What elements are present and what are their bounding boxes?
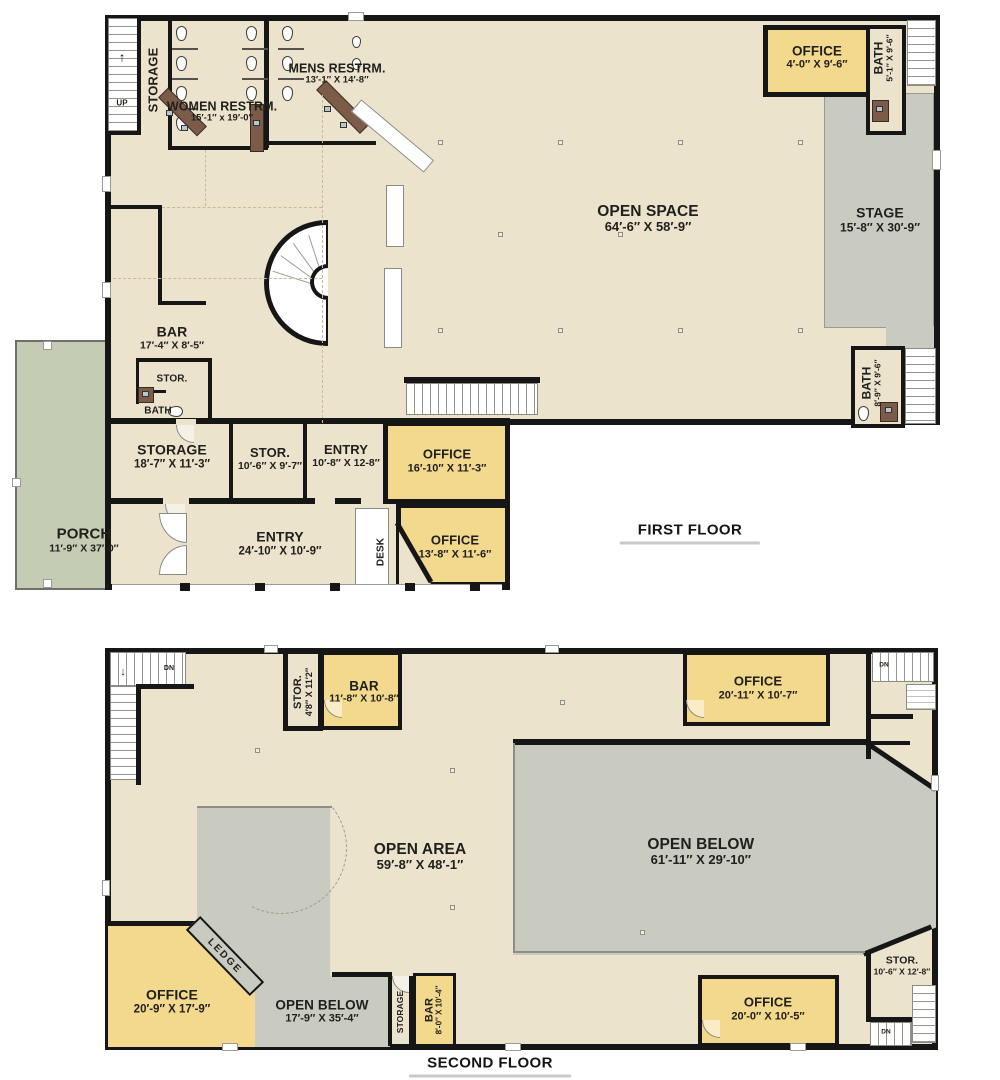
storage-bottom-label: STORAGE (396, 991, 406, 1034)
porch-label: PORCH11′-9″ X 37′-0″ (49, 527, 118, 556)
women-restroom-label: WOMEN RESTRM.15′-1″ x 19′-0″ (167, 100, 277, 125)
window (264, 645, 278, 653)
open-below-right-label: OPEN BELOW61′-11″ X 29′-10″ (647, 836, 754, 868)
first-floor-title: FIRST FLOOR (620, 522, 760, 545)
office-16-label: OFFICE16′-10″ X 11′-3″ (408, 448, 487, 475)
window (505, 1043, 521, 1051)
down-arrow-icon: ↓ (120, 666, 126, 678)
stairs-up-label: UP (116, 100, 127, 109)
stor-by-bar-label: STOR. (157, 373, 188, 384)
window (102, 880, 110, 896)
window (545, 645, 559, 653)
open-area-label: OPEN AREA59′-8″ X 48′-1″ (374, 841, 466, 873)
bath-by-bar-label: BATH (144, 405, 171, 416)
wall (108, 921, 198, 926)
stor-top-label: STOR.4′8″ X 11′2″ (292, 668, 314, 716)
wall (388, 976, 392, 1046)
staircase (906, 684, 936, 710)
stor-center-label: STOR.10′-6″ X 9′-7″ (238, 446, 302, 472)
wall (283, 651, 288, 731)
storage-top-label: STORAGE (147, 48, 162, 113)
staircase-down (110, 686, 138, 780)
wall (332, 972, 392, 977)
entry-main-label: ENTRY24′-10″ X 10′-9″ (238, 530, 321, 559)
bar-label: BAR17′-4″ X 8′-5″ (140, 324, 204, 351)
second-floor-plan: OPEN BELOW61′-11″ X 29′-10″ OPEN BELOW17… (0, 0, 1000, 1080)
window (222, 1043, 238, 1051)
office-13-label: OFFICE13′-8″ X 11′-6″ (419, 534, 492, 561)
balcony-edge (513, 743, 515, 953)
column-marker (640, 930, 645, 935)
column-marker (560, 700, 565, 705)
stairs-dn-label: DN (164, 665, 174, 673)
bar-bottom-label: BAR8′-0″ X 10′-4″ (423, 986, 444, 1035)
wall (866, 951, 871, 1021)
wall (866, 714, 913, 719)
office-top-right-2f-label: OFFICE20′-11″ X 10′-7″ (719, 675, 798, 702)
open-below-right-area: OPEN BELOW61′-11″ X 29′-10″ (513, 743, 936, 955)
window (931, 775, 939, 791)
wall (870, 741, 910, 745)
column-marker (450, 768, 455, 773)
bath-top-right-label: BATH5′-1″ X 9′-6″ (873, 34, 896, 81)
entry-small-label: ENTRY10′-8″ X 12-8″ (312, 443, 379, 469)
office-top-right-label: OFFICE4′-0″ X 9′-6″ (786, 43, 847, 70)
office-bottom-right-label: OFFICE20′-0″ X 10′-5″ (731, 996, 804, 1023)
wall (136, 684, 194, 689)
office-bottom-left-label: OFFICE20′-9″ X 17′-9″ (134, 988, 211, 1017)
stairs-dn-label: DN (881, 1028, 891, 1035)
wall (513, 739, 870, 745)
wall (136, 684, 141, 785)
wall (283, 726, 323, 731)
desk-label: DESK (375, 538, 386, 566)
staircase-down (912, 985, 936, 1043)
mens-restroom-label: MENS RESTRM.13′-1″ X 14′-8″ (288, 62, 385, 87)
second-floor-title: SECOND FLOOR (409, 1055, 571, 1078)
storage-left-label: STORAGE18′-7″ X 11′-3″ (134, 443, 210, 472)
column-marker (450, 905, 455, 910)
stairs-dn-label: DN (879, 661, 889, 668)
window (790, 1043, 806, 1051)
up-arrow-icon: ↑ (119, 51, 126, 66)
open-below-center-label: OPEN BELOW17′-9″ X 35′-4″ (275, 997, 368, 1024)
column-marker (255, 748, 260, 753)
bath-bottom-right-label: BATH8′-9″ X 9′-6″ (861, 359, 884, 406)
bar-top-label: BAR11′-8″ X 10′-8″ (329, 679, 398, 706)
balcony-edge (513, 951, 865, 953)
stage-label: STAGE15′-8″ X 30′-9″ (840, 205, 920, 234)
open-space-label: OPEN SPACE64′-6″ X 58′-9″ (597, 203, 699, 235)
stor-bottom-right-label: STOR.10′-6″ X 12′-8″ (874, 955, 931, 976)
